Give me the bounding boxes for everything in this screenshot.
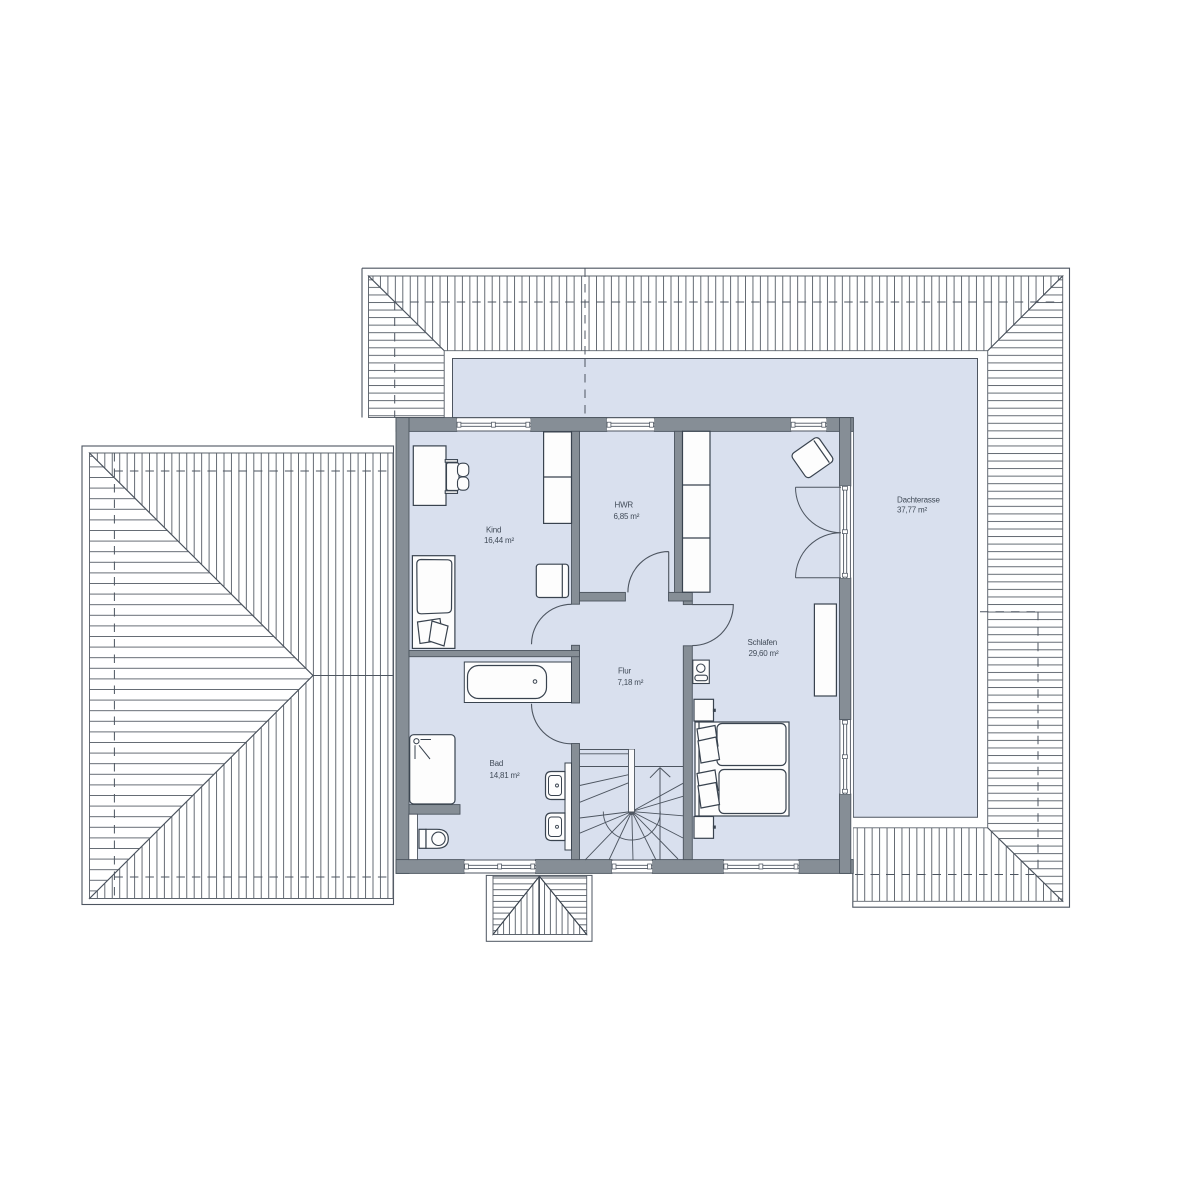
svg-text:HWR: HWR (615, 501, 634, 510)
svg-text:Kind: Kind (486, 526, 501, 535)
svg-text:Schlafen: Schlafen (748, 638, 778, 647)
svg-text:16,44 m²: 16,44 m² (484, 536, 515, 545)
svg-text:6,85 m²: 6,85 m² (614, 512, 640, 521)
svg-text:Dachterasse: Dachterasse (897, 496, 940, 505)
svg-text:7,18 m²: 7,18 m² (618, 678, 644, 687)
svg-text:Flur: Flur (618, 667, 632, 676)
svg-text:29,60 m²: 29,60 m² (749, 649, 780, 658)
svg-text:37,77 m²: 37,77 m² (897, 506, 928, 515)
svg-text:Bad: Bad (490, 759, 504, 768)
svg-text:14,81 m²: 14,81 m² (490, 771, 521, 780)
